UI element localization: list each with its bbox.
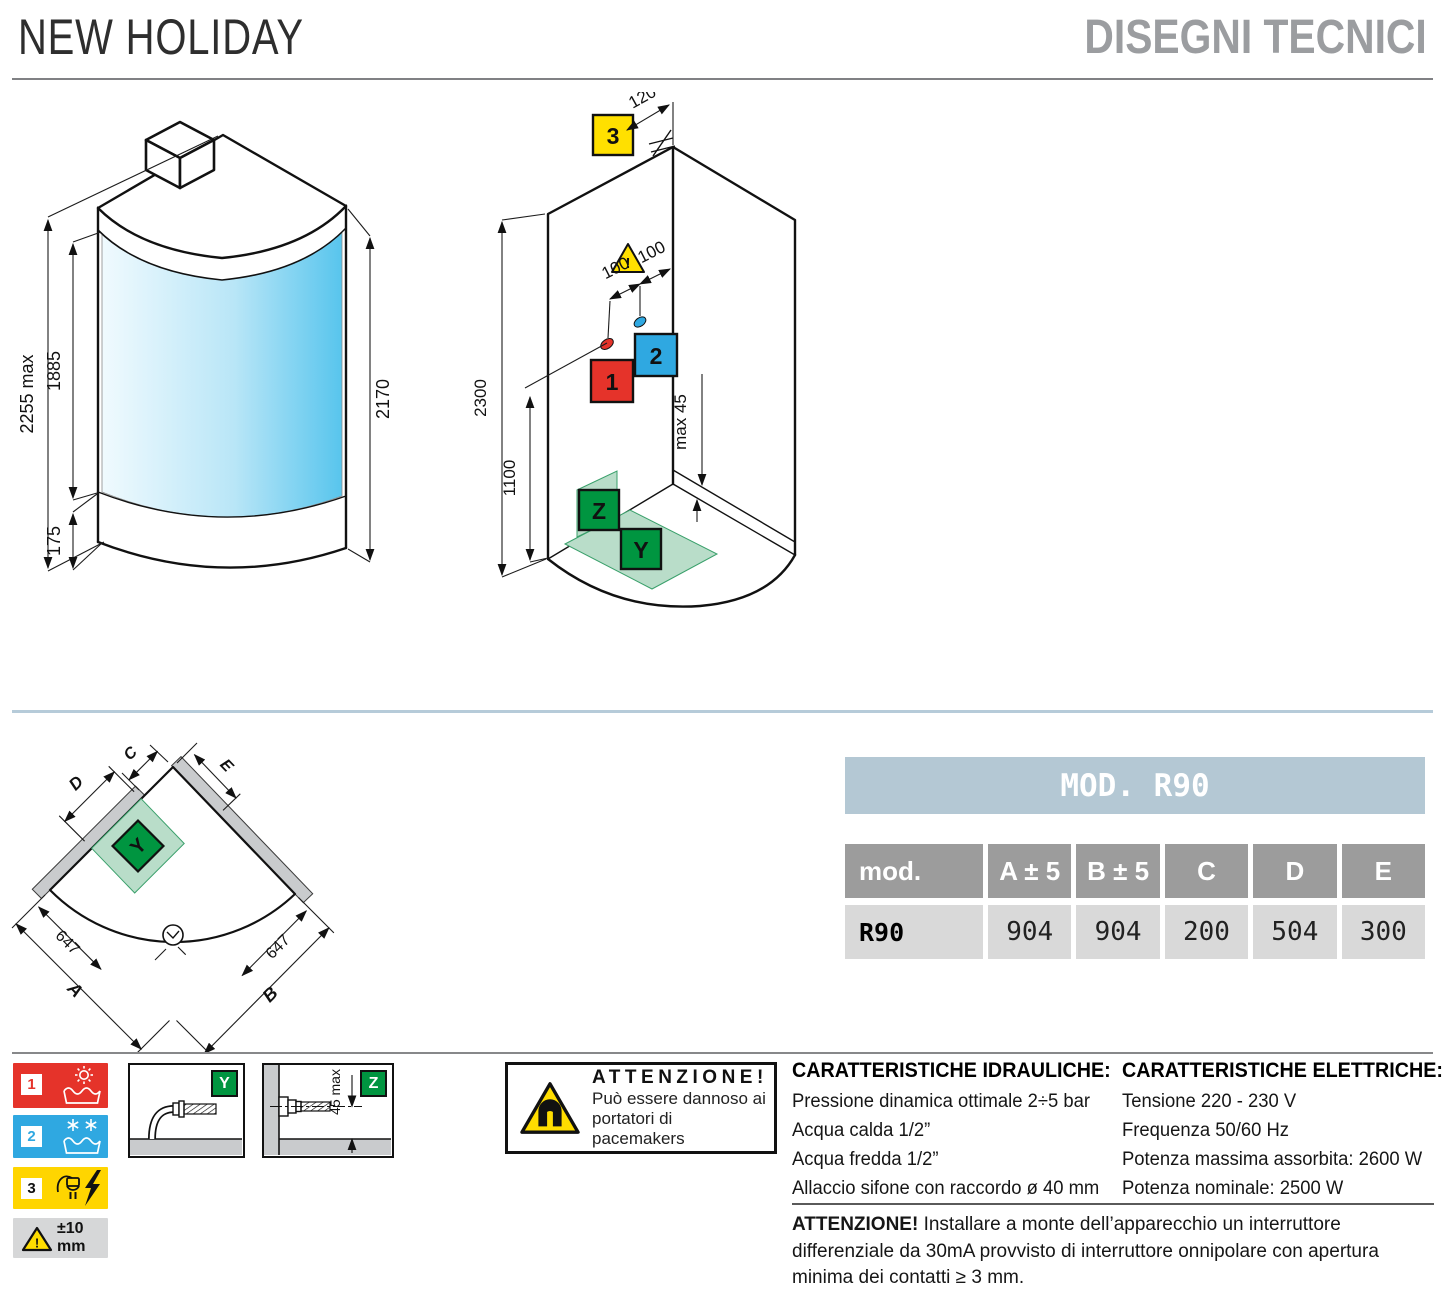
table-header-d: D [1253,844,1336,898]
table-cell-a: 904 [988,905,1071,959]
cold-water-point: 2 [632,315,677,376]
tolerance-warning-icon: ! [21,1225,53,1252]
label-b: B [258,983,281,1006]
page-title: NEW HOLIDAY [18,8,304,66]
hot-water-basin-icon [64,1088,100,1103]
hydraulics-line-2: Acqua calda 1/2” [792,1116,1112,1145]
note-divider [792,1203,1434,1205]
electrics-title: CARATTERISTICHE ELETTRICHE: [1122,1059,1418,1083]
electrics-line-4: Potenza nominale: 2500 W [1122,1174,1428,1203]
electrics-line-2: Frequenza 50/60 Hz [1122,1116,1428,1145]
dim-2255-label: 2255 max [18,354,37,433]
tolerance-label: ±10 mm [57,1218,108,1258]
label-a: A [63,977,87,1001]
dim-120-label: 120 [625,92,659,112]
floor-drain-detail-box: Y [128,1063,245,1158]
label-d: D [65,772,87,794]
table-cell-model: R90 [845,905,983,959]
installation-drawing: Z Y 3 120 ! 100 100 [465,92,830,637]
dim-45max-label: 45 max [327,1069,343,1115]
bottom-divider [12,1052,1433,1054]
dimension-wall-height: 2300 [471,214,546,577]
label-e: E [216,756,237,776]
electrics-line-1: Tensione 220 - 230 V [1122,1087,1428,1116]
spec-table: MOD. R90 mod. A ± 5 B ± 5 C D E R90 904 … [845,757,1425,959]
table-cell-e: 300 [1342,905,1425,959]
plan-dimension-b: B [177,928,329,1053]
hydraulics-line-1: Pressione dinamica ottimale 2÷5 bar [792,1087,1112,1116]
badge-floor-drain: Y [621,529,661,569]
badge-1-label: 1 [606,369,619,395]
wall-drain-badge: Z [360,1070,387,1097]
hydraulics-line-4: Allaccio sifone con raccordo ø 40 mm [792,1174,1112,1203]
badge-3-label: 3 [607,123,620,149]
table-header-a: A ± 5 [988,844,1071,898]
magnet-warning-icon [518,1079,582,1137]
cold-water-basin-icon [64,1138,100,1153]
magnet-warning-title: ATTENZIONE! [592,1067,768,1089]
roof-control-box [146,122,214,188]
hydraulics-title: CARATTERISTICHE IDRAULICHE: [792,1059,1102,1083]
dimension-glass-height: 1885 [44,232,101,500]
plug-icon [58,1176,79,1199]
legend-electric: 3 [13,1167,108,1209]
snowflake-icons [68,1119,96,1131]
dim-175-label: 175 [44,526,64,556]
table-header-b: B ± 5 [1076,844,1159,898]
table-header-e: E [1342,844,1425,898]
magnet-warning-box: ATTENZIONE! Può essere dannoso ai portat… [505,1062,777,1154]
dimension-door-height: 2170 [348,209,393,562]
table-header-mod: mod. [845,844,983,898]
magnet-warning-line2: portatori di pacemakers [592,1109,768,1149]
table-header-c: C [1165,844,1248,898]
badge-2-label: 2 [650,343,663,369]
tolerance-exclamation: ! [35,1236,39,1251]
badge-y-label: Y [633,537,648,563]
wall-fitting [270,1097,362,1116]
table-title: MOD. R90 [845,757,1425,814]
hydraulics-section: CARATTERISTICHE IDRAULICHE: Pressione di… [792,1059,1122,1203]
dim-1885-label: 1885 [44,351,64,391]
electric-icons [55,1168,105,1208]
table-cell-b: 904 [1076,905,1159,959]
floor-drain-badge: Y [211,1070,238,1097]
electrics-section: CARATTERISTICHE ELETTRICHE: Tensione 220… [1122,1059,1437,1203]
magnet-warning-line1: Può essere dannoso ai [592,1089,768,1109]
label-c: C [121,743,142,764]
note-title: ATTENZIONE! [792,1214,918,1235]
table-cell-c: 200 [1165,905,1248,959]
hot-water-point: 1 [591,336,633,402]
sun-icon [75,1066,93,1084]
cabin-isometric-drawing: 2255 max 1885 175 2170 [18,100,418,615]
table-row: R90 904 904 200 504 300 [845,905,1425,959]
badge-electric: 3 [593,115,675,156]
page-subtitle: DISEGNI TECNICI [1085,10,1427,65]
badge-wall-drain: Z [579,490,619,530]
plan-dimension-a: A [16,924,169,1053]
hydraulics-line-3: Acqua fredda 1/2” [792,1145,1112,1174]
legend-electric-number: 3 [21,1178,42,1199]
dim-2170-label: 2170 [373,379,393,419]
dimension-floor-step: max 45 [671,374,702,522]
magnet-warning-text: ATTENZIONE! Può essere dannoso ai portat… [592,1067,768,1149]
dim-647-right-label: 647 [263,932,294,963]
elbow-pipe [152,1101,216,1139]
legend-cold-number: 2 [21,1126,42,1147]
plan-drain-circle [163,925,183,945]
legend-hot-number: 1 [21,1074,42,1095]
dim-2300-label: 2300 [471,379,490,417]
legend-cold-water: 2 [13,1115,108,1158]
hot-water-icons [57,1065,105,1106]
technical-sheet-page: NEW HOLIDAY DISEGNI TECNICI [0,0,1445,1294]
badge-z-label: Z [592,498,606,524]
header-divider [12,78,1433,80]
table-cell-d: 504 [1253,905,1336,959]
dimension-tray-height: 175 [44,494,102,570]
installation-warning-note: ATTENZIONE! Installare a monte dell’appa… [792,1212,1440,1292]
dim-1100-label: 1100 [500,460,519,497]
section-divider [12,710,1433,713]
legend-hot-water: 1 [13,1063,108,1108]
cold-water-icons [57,1116,105,1157]
plan-view-drawing: Y C E D 647 [8,733,352,1053]
lightning-icon [85,1170,101,1206]
dim-max45-label: max 45 [671,394,690,450]
wall-drain-detail-box: 45 max Z [262,1063,394,1158]
dim-647-left-label: 647 [52,927,83,958]
legend-tolerance: ! ±10 mm [13,1218,108,1258]
table-header-row: mod. A ± 5 B ± 5 C D E [845,844,1425,898]
electrics-line-3: Potenza massima assorbita: 2600 W [1122,1145,1428,1174]
